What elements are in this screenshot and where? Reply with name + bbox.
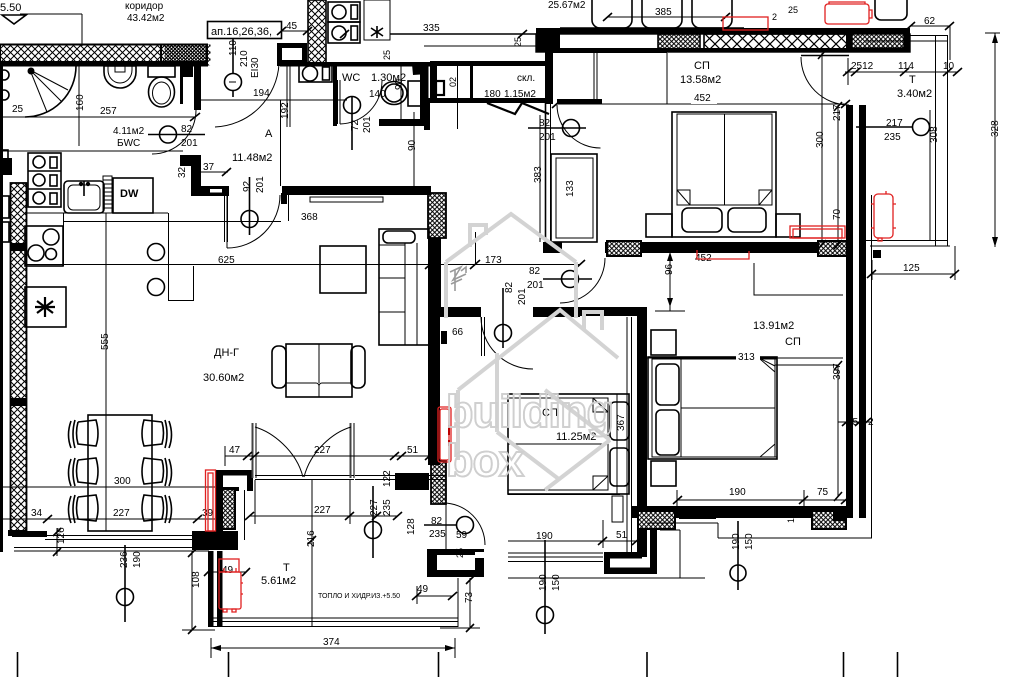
svg-text:227: 227	[369, 499, 380, 516]
svg-text:201: 201	[527, 280, 544, 291]
svg-text:368: 368	[301, 212, 318, 223]
svg-text:37: 37	[203, 162, 215, 173]
svg-text:150: 150	[551, 574, 562, 591]
svg-text:51: 51	[407, 445, 419, 456]
svg-text:236: 236	[119, 551, 130, 568]
svg-text:25: 25	[788, 5, 798, 15]
svg-text:383: 383	[533, 166, 544, 183]
svg-text:25: 25	[847, 417, 859, 428]
svg-text:Т: Т	[283, 562, 290, 574]
svg-text:A: A	[265, 128, 273, 140]
svg-text:128: 128	[406, 518, 417, 535]
svg-text:1.15м2: 1.15м2	[504, 89, 536, 100]
svg-text:216: 216	[306, 530, 317, 547]
svg-text:2: 2	[868, 417, 874, 428]
svg-text:EI30: EI30	[250, 57, 261, 78]
svg-text:367: 367	[616, 414, 627, 431]
svg-text:25: 25	[382, 50, 392, 60]
svg-text:190: 190	[731, 533, 742, 550]
svg-text:227: 227	[314, 445, 331, 456]
svg-text:82: 82	[539, 118, 551, 129]
svg-text:194: 194	[253, 88, 270, 99]
svg-text:2: 2	[772, 12, 777, 22]
svg-text:313: 313	[738, 352, 755, 363]
svg-text:45: 45	[286, 21, 298, 32]
svg-text:66: 66	[452, 327, 464, 338]
svg-text:32: 32	[177, 166, 188, 178]
svg-text:385: 385	[655, 7, 672, 18]
svg-text:ап.16,26,36,: ап.16,26,36,	[211, 26, 272, 38]
svg-text:90: 90	[394, 78, 405, 90]
svg-text:625: 625	[218, 255, 235, 266]
svg-text:WC: WC	[342, 72, 360, 84]
svg-text:скл.: скл.	[517, 73, 535, 84]
svg-text:59: 59	[456, 530, 468, 541]
svg-text:02: 02	[448, 77, 458, 87]
svg-text:2512: 2512	[851, 61, 874, 72]
svg-text:БWC: БWC	[117, 138, 140, 149]
svg-text:190: 190	[729, 487, 746, 498]
svg-text:47: 47	[229, 445, 241, 456]
svg-text:235: 235	[429, 529, 446, 540]
svg-text:СП: СП	[785, 336, 801, 348]
svg-text:3.40м2: 3.40м2	[897, 88, 932, 100]
svg-text:5.50: 5.50	[0, 2, 21, 14]
svg-text:201: 201	[362, 116, 373, 133]
svg-text:box: box	[446, 435, 524, 486]
svg-text:210: 210	[239, 50, 250, 67]
svg-text:235: 235	[382, 499, 393, 516]
svg-text:328: 328	[990, 120, 1001, 137]
svg-text:92: 92	[242, 180, 253, 192]
svg-text:173: 173	[485, 255, 502, 266]
svg-text:190: 190	[132, 551, 143, 568]
svg-text:190: 190	[536, 531, 553, 542]
svg-text:335: 335	[423, 23, 440, 34]
svg-text:180: 180	[484, 89, 501, 100]
svg-text:397: 397	[832, 363, 843, 380]
svg-text:Т: Т	[909, 74, 916, 86]
svg-text:126: 126	[56, 527, 67, 544]
svg-text:90: 90	[407, 139, 418, 151]
svg-text:25.67м2: 25.67м2	[548, 0, 586, 11]
svg-text:227: 227	[314, 505, 331, 516]
svg-text:DW: DW	[120, 188, 139, 200]
svg-text:217: 217	[886, 118, 903, 129]
svg-text:25: 25	[455, 548, 465, 558]
svg-text:73: 73	[464, 591, 475, 603]
svg-text:13.91м2: 13.91м2	[753, 320, 794, 332]
svg-text:5.61м2: 5.61м2	[261, 575, 296, 587]
svg-text:122: 122	[382, 470, 393, 487]
svg-text:201: 201	[181, 138, 198, 149]
svg-text:235: 235	[884, 132, 901, 143]
svg-text:30.60м2: 30.60м2	[203, 372, 244, 384]
svg-text:82: 82	[431, 516, 443, 527]
svg-text:257: 257	[100, 106, 117, 117]
svg-text:133: 133	[565, 180, 576, 197]
svg-text:коридор: коридор	[125, 1, 164, 12]
svg-text:25: 25	[513, 37, 523, 47]
svg-text:201: 201	[539, 132, 556, 143]
svg-text:108: 108	[191, 571, 202, 588]
svg-text:125: 125	[903, 263, 920, 274]
svg-text:10: 10	[943, 61, 955, 72]
svg-text:building: building	[446, 386, 613, 437]
svg-text:82: 82	[504, 281, 515, 293]
svg-text:150: 150	[744, 533, 755, 550]
svg-text:300: 300	[815, 131, 826, 148]
svg-text:82: 82	[181, 124, 193, 135]
svg-text:300: 300	[114, 476, 131, 487]
svg-text:ТОПЛО И ХИДР.ИЗ.+5.50: ТОПЛО И ХИДР.ИЗ.+5.50	[318, 593, 400, 600]
svg-text:227: 227	[113, 508, 130, 519]
svg-text:СП: СП	[694, 60, 710, 72]
svg-text:201: 201	[255, 176, 266, 193]
svg-text:110: 110	[228, 40, 239, 56]
svg-text:217: 217	[832, 104, 843, 121]
svg-text:82: 82	[529, 266, 541, 277]
svg-text:43.42м2: 43.42м2	[127, 13, 165, 24]
svg-text:374: 374	[323, 637, 340, 648]
svg-text:190: 190	[538, 574, 549, 591]
svg-text:140: 140	[369, 89, 386, 100]
svg-text:49: 49	[417, 584, 429, 595]
svg-text:72: 72	[350, 119, 361, 131]
svg-text:13.58м2: 13.58м2	[680, 74, 721, 86]
svg-text:555: 555	[100, 333, 111, 350]
svg-text:160: 160	[75, 94, 86, 111]
svg-text:11.48м2: 11.48м2	[232, 152, 272, 164]
svg-text:96: 96	[664, 263, 675, 275]
svg-text:114: 114	[898, 61, 914, 72]
svg-text:70: 70	[832, 208, 843, 220]
svg-text:ДН-Г: ДН-Г	[214, 347, 239, 359]
svg-text:62: 62	[924, 16, 936, 27]
svg-text:25: 25	[12, 104, 24, 115]
svg-text:192: 192	[280, 102, 291, 119]
svg-text:75: 75	[817, 487, 829, 498]
svg-text:452: 452	[694, 93, 711, 104]
svg-text:34: 34	[31, 508, 43, 519]
svg-text:4.11м2: 4.11м2	[113, 126, 145, 137]
svg-text:51: 51	[616, 530, 628, 541]
svg-text:122: 122	[786, 508, 796, 523]
svg-text:308: 308	[929, 126, 940, 143]
